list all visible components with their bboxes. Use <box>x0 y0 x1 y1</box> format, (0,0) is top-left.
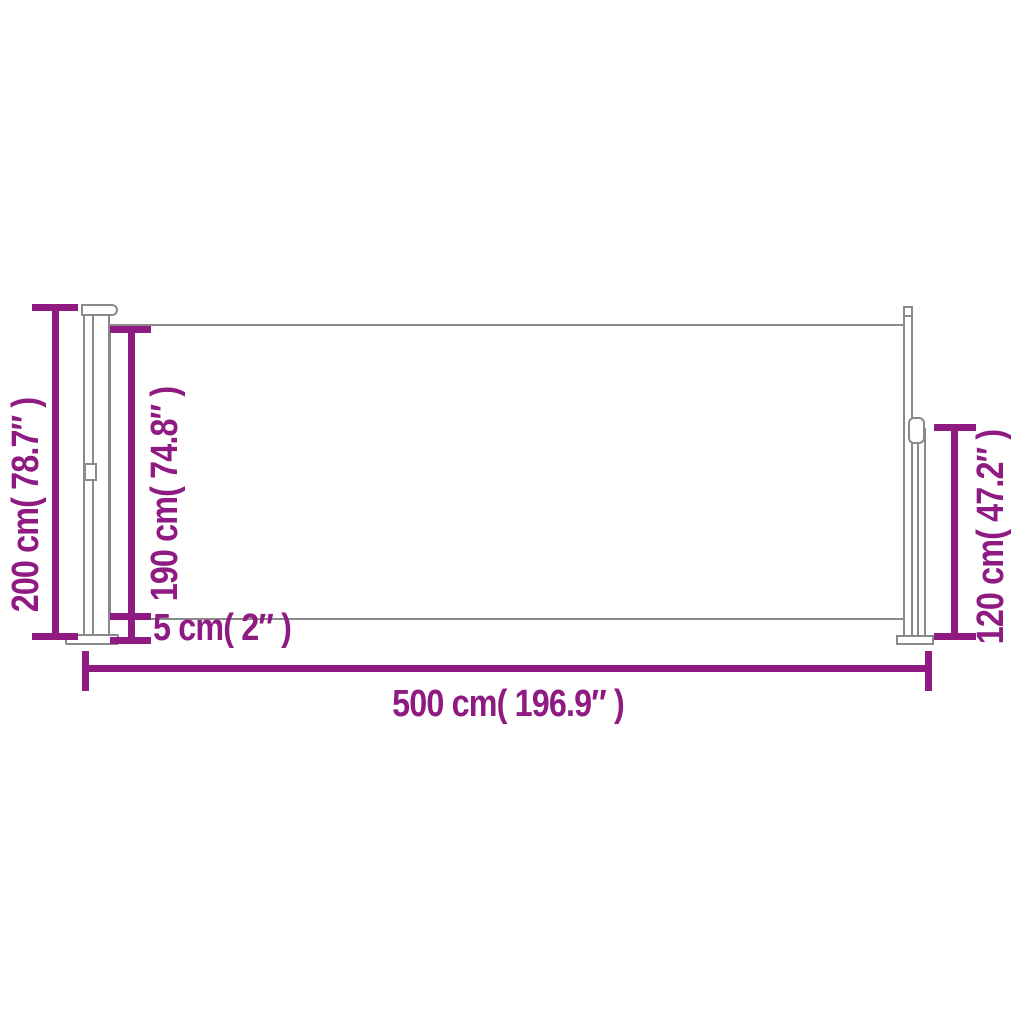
right-post-rear-bar <box>917 428 926 638</box>
total-height-tick-bottom <box>32 633 78 640</box>
total-length-tick-left <box>82 651 89 691</box>
fabric-height-tick-bottom <box>110 613 151 620</box>
fabric-height-tick-top <box>110 326 151 333</box>
total-height-label: 200 cm( 78.7″ ) <box>7 398 45 613</box>
right-post-base-plate <box>896 635 934 645</box>
right-post-cap-seam <box>904 315 912 317</box>
total-height-tick-top <box>32 304 78 311</box>
ground-gap-tick-bottom <box>110 637 151 644</box>
left-post-latch <box>84 463 97 481</box>
ground-gap-label: 5 cm( 2″ ) <box>153 609 291 647</box>
fabric-height-label: 190 cm( 74.8″ ) <box>146 387 184 602</box>
total-length-tick-right <box>925 651 932 691</box>
fabric-height-line <box>128 329 135 620</box>
right-post-body <box>903 306 913 638</box>
awning-dimension-diagram: 200 cm( 78.7″ ) 190 cm( 74.8″ ) 5 cm( 2″… <box>0 0 1024 1024</box>
pole-height-line <box>951 427 958 638</box>
total-height-line <box>52 307 59 640</box>
right-post-handle <box>908 417 925 444</box>
total-length-label: 500 cm( 196.9″ ) <box>392 685 624 723</box>
awning-fabric-panel <box>109 324 907 620</box>
left-post-top-cap <box>81 304 118 316</box>
pole-height-label: 120 cm( 47.2″ ) <box>972 430 1010 645</box>
total-length-line <box>85 665 932 672</box>
